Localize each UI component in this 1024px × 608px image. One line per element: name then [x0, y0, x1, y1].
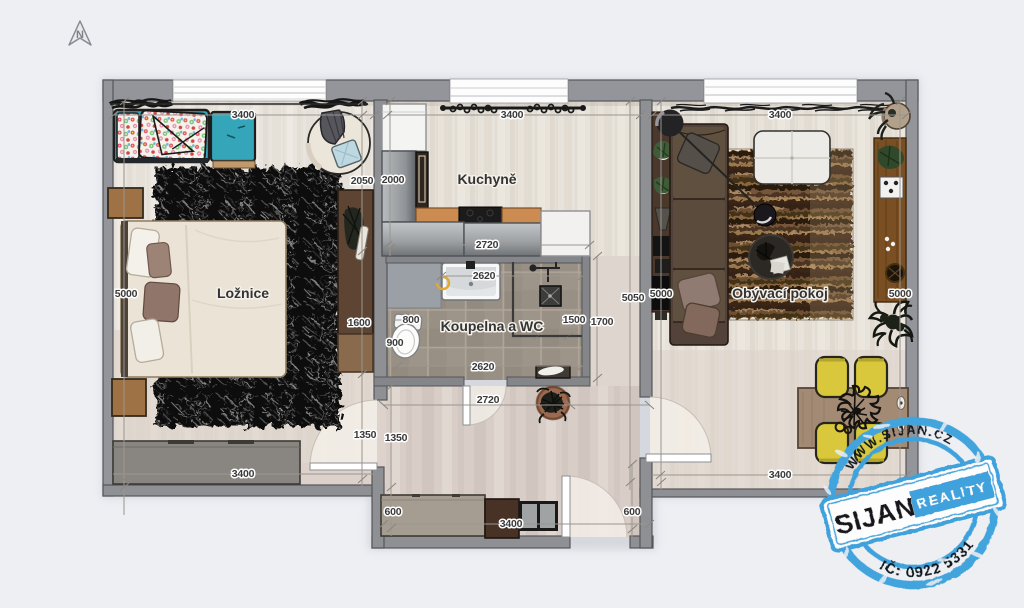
svg-text:600: 600 — [385, 506, 402, 518]
svg-text:2050: 2050 — [351, 175, 374, 187]
svg-text:5000: 5000 — [115, 288, 138, 300]
svg-text:1500: 1500 — [563, 314, 586, 326]
svg-text:3400: 3400 — [769, 109, 792, 121]
svg-text:600: 600 — [624, 506, 641, 518]
svg-text:1700: 1700 — [591, 316, 614, 328]
svg-text:2620: 2620 — [472, 361, 495, 373]
svg-text:N: N — [76, 29, 84, 41]
svg-text:3400: 3400 — [500, 518, 523, 530]
svg-text:3400: 3400 — [501, 109, 524, 121]
svg-text:5000: 5000 — [889, 288, 912, 300]
svg-text:2720: 2720 — [477, 394, 500, 406]
svg-text:2000: 2000 — [382, 174, 405, 186]
svg-text:5050: 5050 — [622, 292, 645, 304]
svg-text:900: 900 — [387, 337, 404, 349]
svg-text:3400: 3400 — [232, 468, 255, 480]
svg-text:1350: 1350 — [385, 432, 408, 444]
svg-text:5000: 5000 — [650, 288, 673, 300]
svg-text:2620: 2620 — [473, 270, 496, 282]
svg-text:3400: 3400 — [232, 109, 255, 121]
svg-text:1600: 1600 — [348, 317, 371, 329]
svg-text:1350: 1350 — [354, 429, 377, 441]
svg-text:2720: 2720 — [476, 239, 499, 251]
svg-text:3400: 3400 — [769, 469, 792, 481]
svg-text:Koupelna a WC: Koupelna a WC — [441, 318, 544, 334]
svg-text:Ložnice: Ložnice — [217, 285, 269, 301]
svg-text:Obývací pokoj: Obývací pokoj — [732, 285, 828, 301]
svg-text:800: 800 — [403, 314, 420, 326]
svg-text:Kuchyně: Kuchyně — [457, 171, 516, 187]
